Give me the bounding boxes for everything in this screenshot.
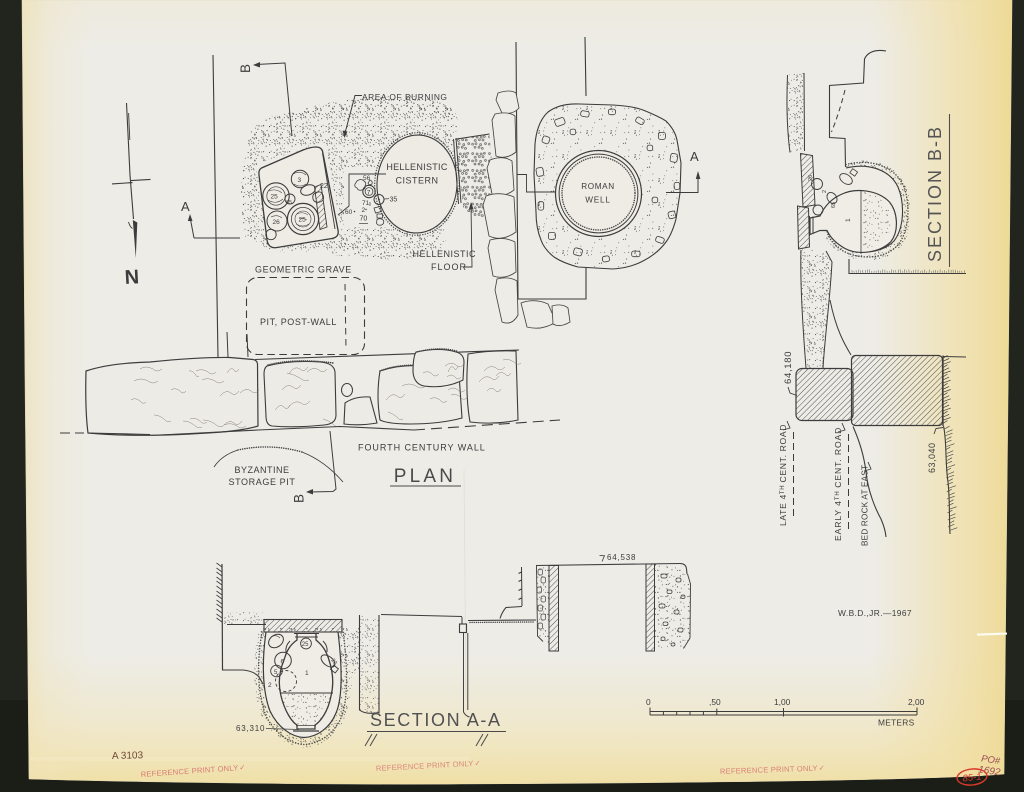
svg-text:26: 26 — [808, 175, 814, 181]
svg-text:PLAN: PLAN — [394, 466, 456, 487]
svg-text:7: 7 — [367, 189, 371, 196]
svg-text:1: 1 — [305, 670, 309, 677]
svg-text:22: 22 — [320, 183, 328, 190]
svg-text:3: 3 — [298, 177, 302, 184]
svg-text:A: A — [690, 149, 700, 164]
svg-text:6: 6 — [281, 659, 285, 666]
svg-text:FLOOR: FLOOR — [431, 262, 467, 272]
svg-text:BYZANTINE: BYZANTINE — [234, 465, 289, 475]
svg-text:SECTION B-B: SECTION B-B — [925, 125, 945, 262]
svg-text:85-1: 85-1 — [962, 772, 982, 785]
svg-text:GEOMETRIC GRAVE: GEOMETRIC GRAVE — [255, 265, 352, 275]
svg-text:25: 25 — [299, 217, 307, 224]
svg-text:65: 65 — [831, 202, 837, 208]
svg-text:HELLENISTIC: HELLENISTIC — [386, 162, 448, 172]
svg-text:63,310: 63,310 — [236, 724, 265, 733]
svg-text:26: 26 — [273, 219, 281, 226]
svg-text:,50: ,50 — [709, 697, 721, 707]
svg-text:2: 2 — [268, 682, 272, 689]
svg-text:1,00: 1,00 — [774, 697, 791, 707]
svg-text:FOURTH CENTURY WALL: FOURTH CENTURY WALL — [358, 443, 486, 453]
svg-text:60: 60 — [345, 209, 353, 216]
svg-text:35: 35 — [390, 197, 398, 204]
svg-text:N: N — [124, 266, 140, 289]
svg-text:LATE 4TH CENT. ROAD: LATE 4TH CENT. ROAD — [778, 424, 788, 526]
svg-text:PIT, POST-WALL: PIT, POST-WALL — [260, 317, 337, 327]
svg-text:2: 2 — [822, 190, 828, 193]
svg-text:SECTION A-A: SECTION A-A — [370, 710, 502, 730]
svg-text:71: 71 — [362, 200, 370, 207]
svg-text:HELLENISTIC: HELLENISTIC — [412, 249, 476, 259]
svg-text:25: 25 — [271, 194, 279, 201]
svg-text:A: A — [181, 199, 191, 214]
svg-text:EARLY 4TH CENT. ROAD: EARLY 4TH CENT. ROAD — [833, 427, 843, 541]
svg-text:64,180: 64,180 — [783, 351, 794, 384]
svg-text:BED ROCK AT EAST: BED ROCK AT EAST — [861, 465, 870, 546]
svg-text:A 3103: A 3103 — [112, 750, 144, 762]
svg-text:2: 2 — [362, 207, 366, 214]
svg-text:B: B — [292, 494, 307, 503]
svg-text:METERS: METERS — [878, 718, 915, 728]
svg-text:2,00: 2,00 — [908, 697, 925, 707]
svg-text:1: 1 — [845, 218, 852, 222]
svg-text:63,040: 63,040 — [927, 442, 937, 473]
svg-text:CISTERN: CISTERN — [395, 176, 438, 186]
svg-text:W.B.D.,JR.—1967: W.B.D.,JR.—1967 — [838, 608, 912, 618]
svg-text:64,538: 64,538 — [607, 553, 636, 562]
svg-text:B: B — [238, 64, 253, 73]
svg-text:ROMAN: ROMAN — [581, 182, 614, 191]
svg-text:STORAGE PIT: STORAGE PIT — [229, 477, 296, 487]
svg-text:AREA OF BURNING: AREA OF BURNING — [362, 92, 448, 102]
svg-text:25: 25 — [302, 642, 309, 648]
svg-text:70: 70 — [360, 216, 368, 223]
svg-text:65: 65 — [286, 200, 292, 206]
svg-text:0: 0 — [646, 697, 651, 707]
svg-text:WELL: WELL — [585, 196, 611, 205]
